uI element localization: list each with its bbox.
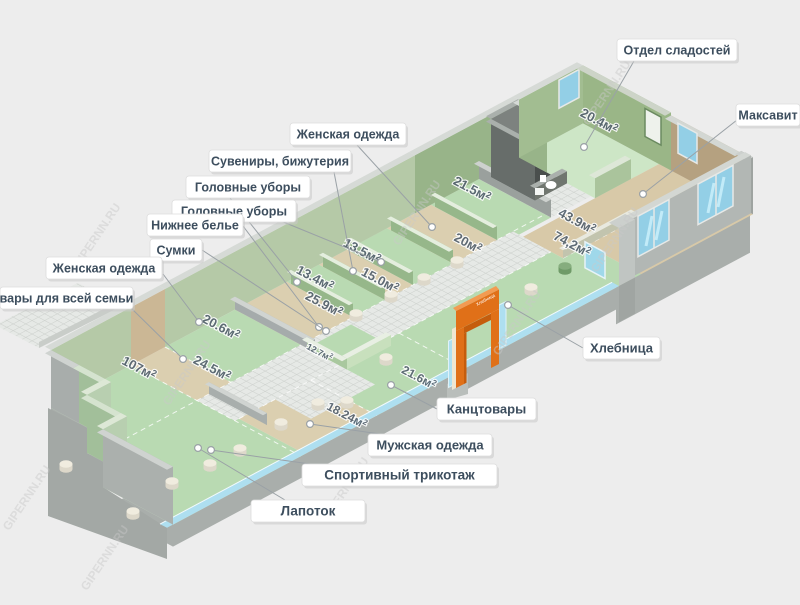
svg-text:Отдел сладостей: Отдел сладостей — [624, 44, 731, 58]
svg-text:Канцтовары: Канцтовары — [447, 402, 526, 417]
svg-text:Сумки: Сумки — [156, 244, 195, 258]
svg-text:Лапоток: Лапоток — [281, 504, 336, 519]
svg-text:Хлебница: Хлебница — [590, 341, 654, 356]
svg-text:Женская одежда: Женская одежда — [296, 128, 401, 142]
svg-text:Мужская одежда: Мужская одежда — [376, 438, 484, 453]
svg-text:Сувениры, бижутерия: Сувениры, бижутерия — [211, 155, 349, 169]
svg-text:Женская одежда: Женская одежда — [52, 262, 157, 276]
svg-text:Максавит: Максавит — [738, 109, 797, 123]
svg-text:вары для всей семьи: вары для всей семьи — [0, 292, 133, 306]
svg-text:Нижнее белье: Нижнее белье — [151, 219, 239, 233]
svg-text:Спортивный трикотаж: Спортивный трикотаж — [324, 468, 475, 483]
svg-text:Головные уборы: Головные уборы — [195, 181, 301, 195]
